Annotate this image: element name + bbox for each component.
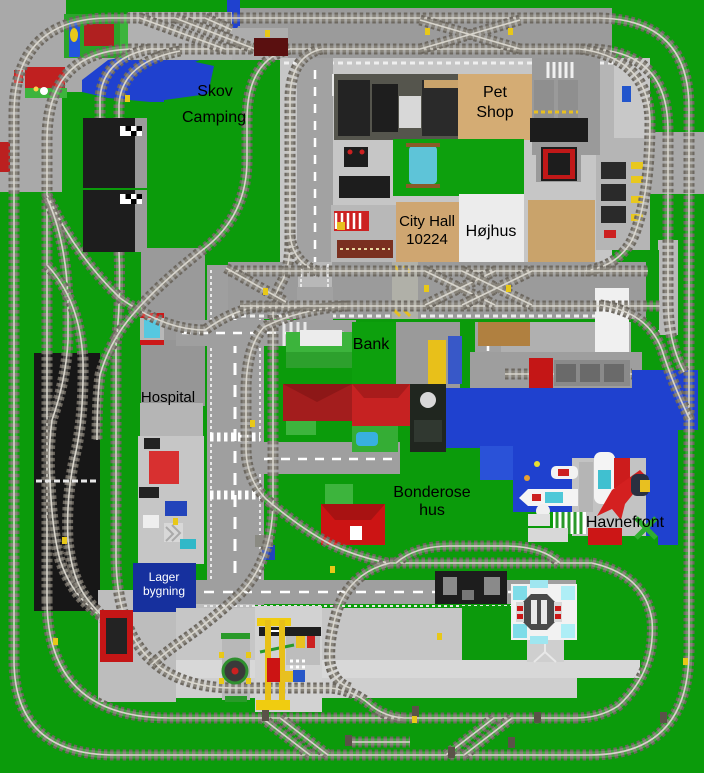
svg-text:City Hall: City Hall (399, 213, 455, 230)
svg-text:Pet: Pet (483, 84, 508, 101)
svg-text:Camping: Camping (182, 109, 246, 126)
svg-text:Højhus: Højhus (466, 223, 517, 240)
svg-text:Skov: Skov (197, 83, 233, 100)
svg-text:Shop: Shop (476, 104, 513, 121)
svg-text:10224: 10224 (406, 231, 448, 248)
svg-text:Hospital: Hospital (141, 389, 195, 406)
svg-text:bygning: bygning (143, 584, 185, 598)
svg-text:Havnefront: Havnefront (586, 514, 665, 531)
svg-text:Bank: Bank (353, 336, 390, 353)
svg-text:Lager: Lager (149, 570, 180, 584)
svg-text:hus: hus (419, 502, 445, 519)
svg-text:Bonderose: Bonderose (393, 484, 470, 501)
